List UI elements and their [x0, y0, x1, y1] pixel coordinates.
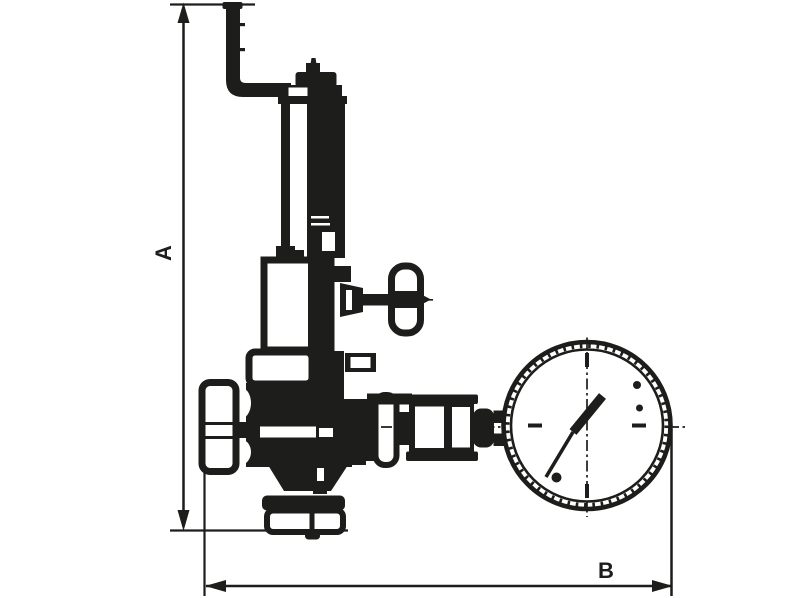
- technical-drawing-canvas: A B: [0, 0, 800, 598]
- spring-line: [311, 223, 330, 226]
- mid-chamber: [264, 260, 351, 350]
- union-stem: [473, 409, 494, 448]
- stem-highlight: [322, 232, 335, 251]
- collar-slot: [289, 88, 308, 98]
- spring-housing-column: [276, 58, 347, 262]
- valve-dimension-drawing: A B: [0, 0, 800, 598]
- gauge-outlet: [342, 395, 412, 465]
- needle-counterweight: [552, 473, 562, 483]
- stem-tip-icon: [422, 295, 432, 305]
- union-shoulder: [367, 394, 412, 405]
- dial-dot: [636, 405, 643, 412]
- inlet-cap-nut: [202, 383, 236, 472]
- dimension-b-label: B: [598, 558, 614, 583]
- mid-step: [331, 266, 351, 282]
- handle-hub: [392, 291, 421, 308]
- bottom-notch: [305, 531, 320, 540]
- body-upper: [246, 383, 342, 427]
- gland-slot: [346, 290, 352, 310]
- dim-b-arrow-left-icon: [205, 580, 226, 592]
- bonnet-cap: [296, 72, 337, 87]
- valve-body: [202, 383, 366, 472]
- pressure-gauge-dial: [504, 338, 671, 518]
- side-tap-with-oval-handle: [340, 266, 436, 333]
- bottom-cone: [268, 465, 348, 491]
- body-bore-band: [258, 427, 316, 438]
- flange-ring: [249, 352, 312, 384]
- nut-window: [452, 407, 470, 448]
- boss-slot: [351, 357, 371, 368]
- dim-b-arrow-right-icon: [652, 580, 673, 592]
- bottom-union: [267, 511, 343, 533]
- dimension-a-label: A: [151, 245, 176, 261]
- bottom-outlet-connection: [262, 463, 348, 540]
- pipe-tick: [240, 48, 245, 51]
- spring-line: [311, 216, 329, 219]
- body-lower: [246, 437, 352, 467]
- nut-window: [415, 407, 444, 449]
- exhaust-elbow-pipe: [223, 2, 292, 97]
- tube-left-wall: [281, 100, 290, 252]
- pipe-body: [226, 4, 291, 97]
- pipe-tick: [240, 23, 245, 26]
- dial-dot: [633, 381, 641, 389]
- plunger: [308, 260, 331, 350]
- outlet-cap: [376, 395, 397, 465]
- dim-a-arrow-down-icon: [178, 510, 190, 531]
- bottom-column-slot: [317, 468, 324, 481]
